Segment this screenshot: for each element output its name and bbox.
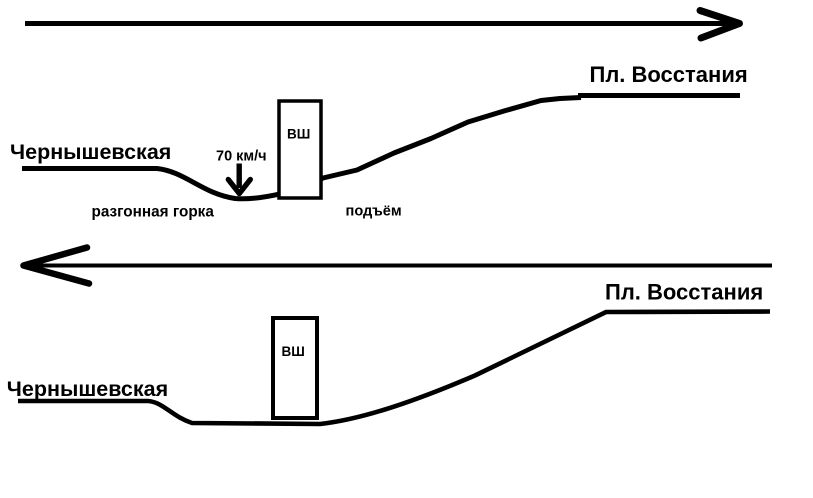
- svg-text:разгонная горка: разгонная горка: [92, 204, 215, 221]
- svg-text:Чернышевская: Чернышевская: [10, 140, 171, 164]
- svg-text:Пл. Восстания: Пл. Восстания: [605, 280, 763, 305]
- svg-text:подъём: подъём: [346, 204, 402, 220]
- svg-text:ВШ: ВШ: [287, 127, 310, 142]
- svg-text:Пл. Восстания: Пл. Восстания: [590, 62, 748, 87]
- svg-text:70 км/ч: 70 км/ч: [216, 149, 267, 165]
- svg-text:ВШ: ВШ: [282, 344, 305, 359]
- svg-text:Чернышевская: Чернышевская: [7, 377, 168, 401]
